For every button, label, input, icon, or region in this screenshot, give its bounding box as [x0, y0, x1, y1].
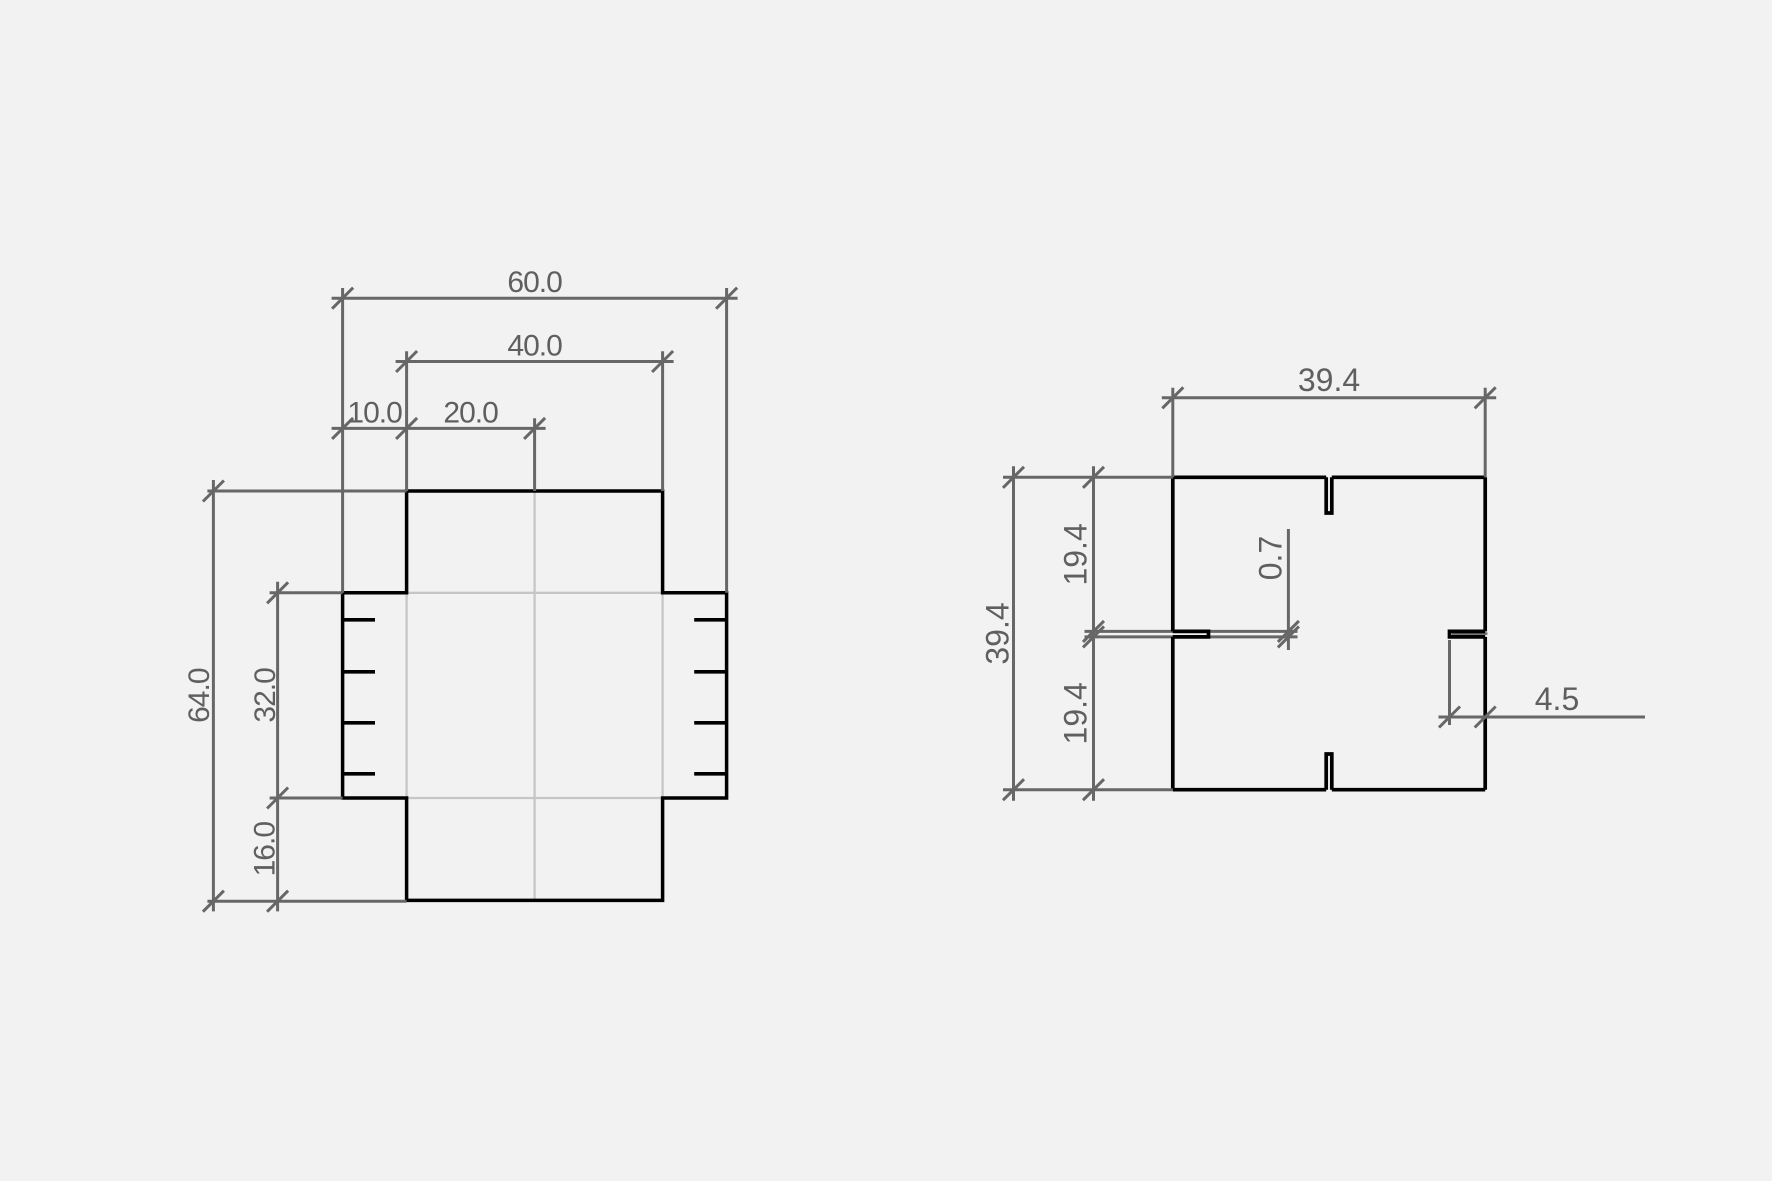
svg-text:19.4: 19.4 — [1058, 523, 1094, 585]
svg-text:60.0: 60.0 — [507, 266, 562, 299]
svg-text:32.0: 32.0 — [249, 668, 282, 723]
svg-text:20.0: 20.0 — [443, 396, 498, 429]
svg-text:19.4: 19.4 — [1058, 682, 1094, 744]
svg-text:39.4: 39.4 — [1298, 362, 1360, 398]
svg-text:16.0: 16.0 — [249, 822, 282, 877]
svg-text:10.0: 10.0 — [347, 396, 402, 429]
svg-text:4.5: 4.5 — [1535, 681, 1579, 717]
svg-text:40.0: 40.0 — [507, 330, 562, 363]
svg-text:0.7: 0.7 — [1253, 536, 1289, 580]
svg-text:39.4: 39.4 — [980, 602, 1016, 664]
svg-text:64.0: 64.0 — [183, 668, 216, 723]
